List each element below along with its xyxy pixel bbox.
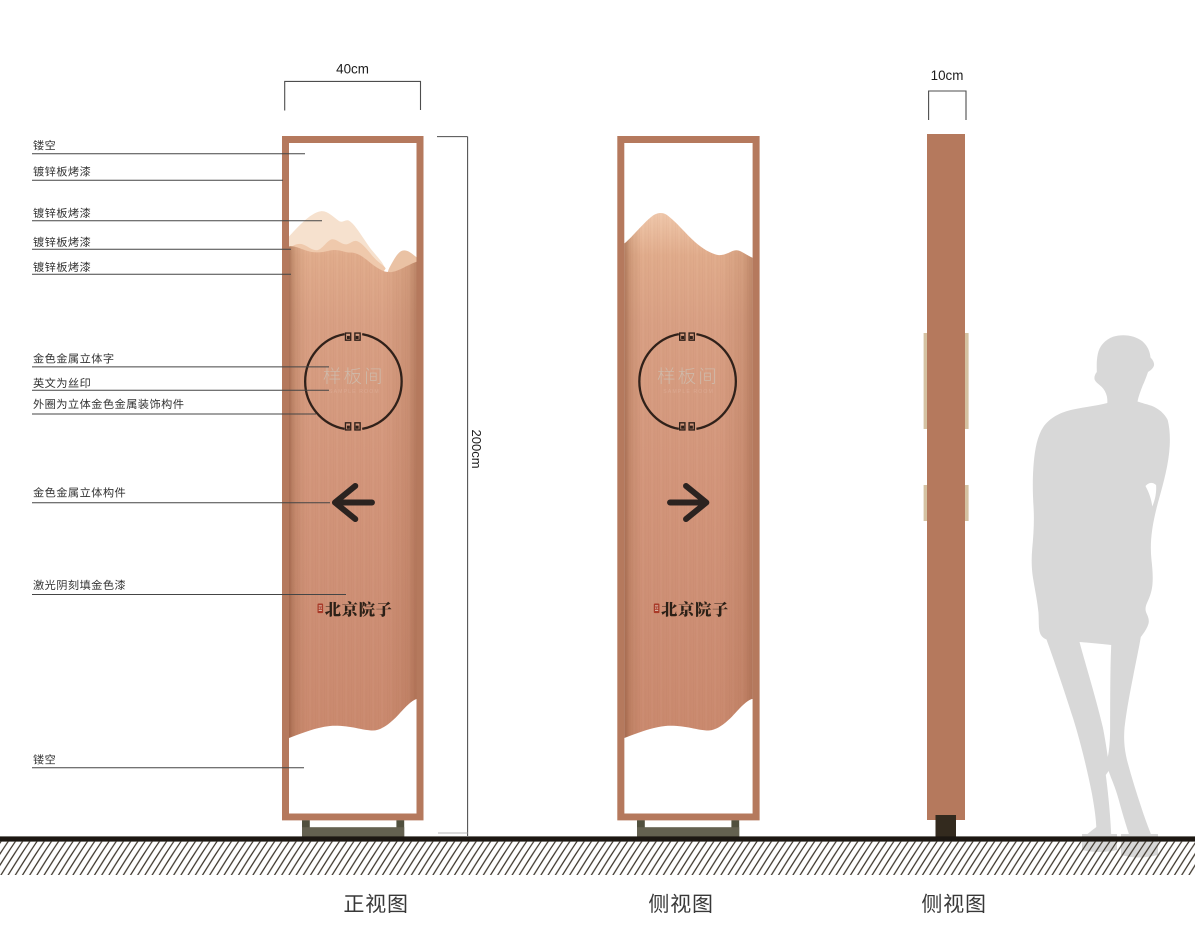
svg-text:200cm: 200cm <box>469 430 484 469</box>
svg-text:10cm: 10cm <box>931 68 964 83</box>
svg-text:40cm: 40cm <box>336 62 369 77</box>
